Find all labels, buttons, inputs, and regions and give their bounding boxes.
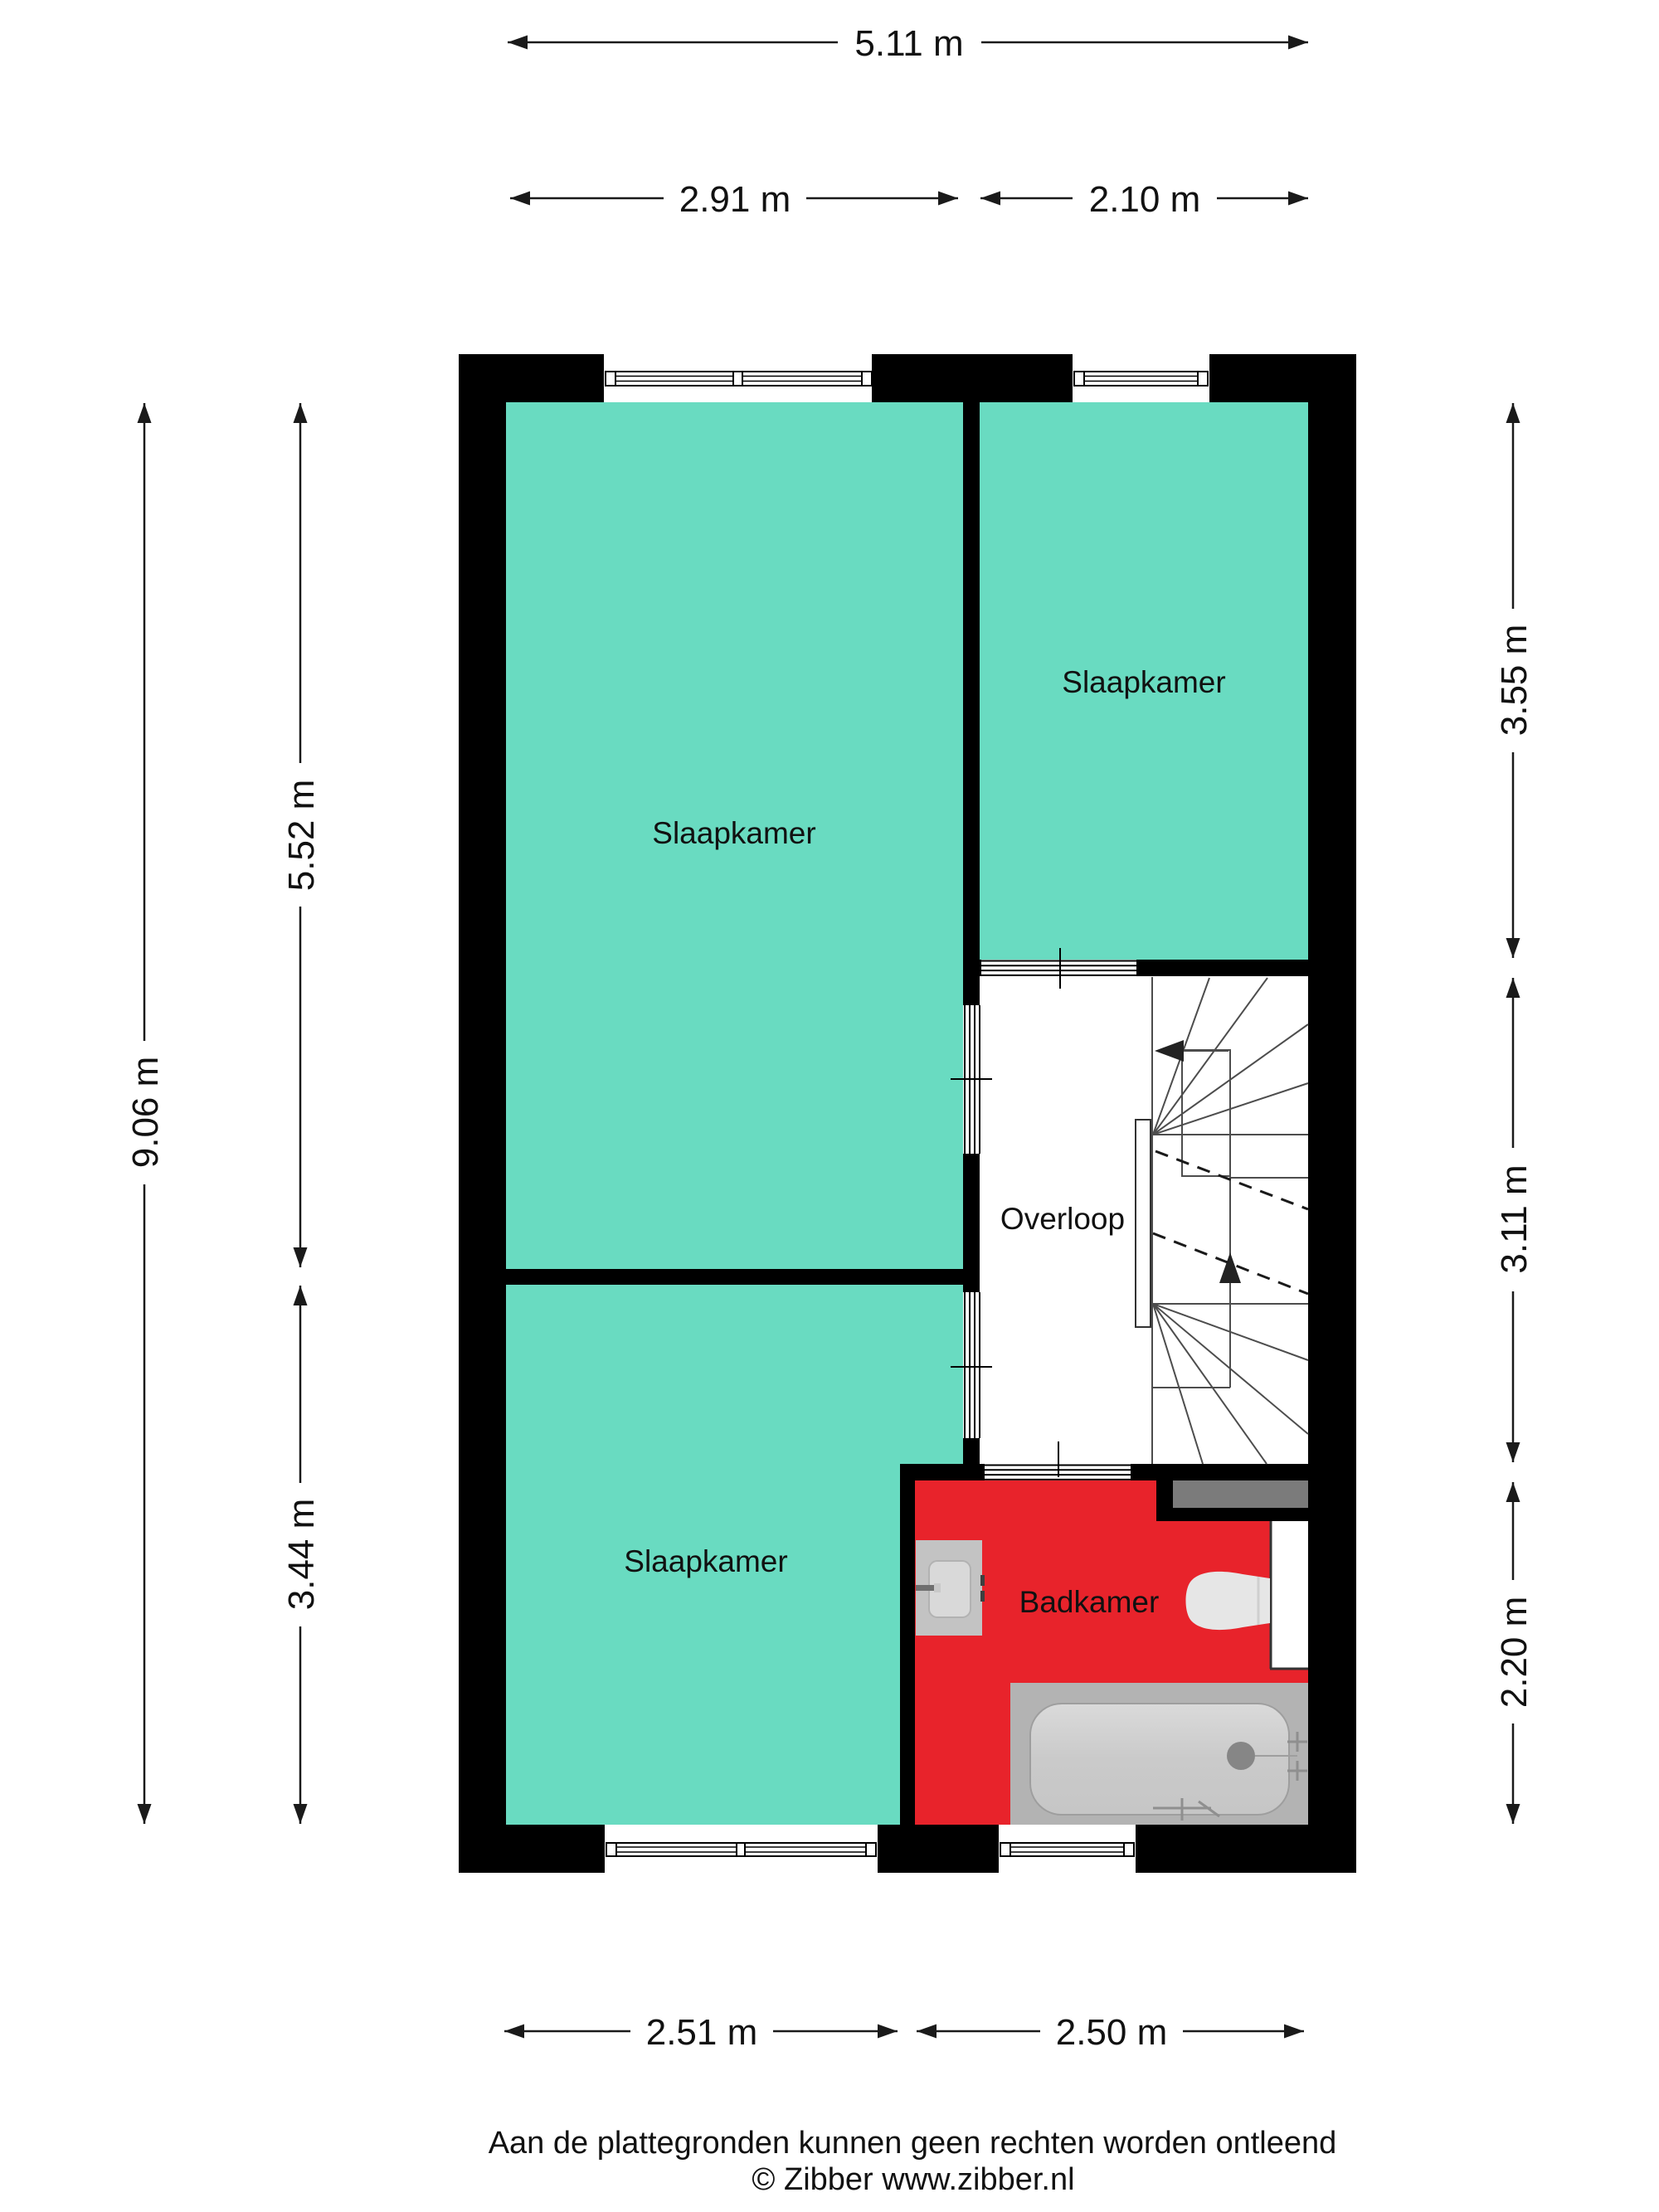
svg-text:Slaapkamer: Slaapkamer (624, 1544, 787, 1578)
svg-text:2.10 m: 2.10 m (1089, 179, 1201, 220)
svg-text:2.50 m: 2.50 m (1056, 2012, 1168, 2053)
svg-text:5.11 m: 5.11 m (854, 23, 963, 64)
svg-text:Slaapkamer: Slaapkamer (1062, 665, 1225, 699)
svg-text:5.52 m: 5.52 m (281, 780, 322, 892)
svg-text:© Zibber www.zibber.nl: © Zibber www.zibber.nl (752, 2162, 1074, 2197)
svg-text:2.51 m: 2.51 m (646, 2012, 758, 2053)
svg-text:3.44 m: 3.44 m (281, 1499, 322, 1611)
svg-text:3.55 m: 3.55 m (1494, 625, 1535, 737)
svg-text:Aan de plattegronden kunnen ge: Aan de plattegronden kunnen geen rechten… (489, 2126, 1337, 2161)
svg-text:3.11 m: 3.11 m (1494, 1164, 1535, 1273)
svg-text:9.06 m: 9.06 m (125, 1057, 166, 1169)
svg-text:2.91 m: 2.91 m (679, 179, 791, 220)
svg-text:Badkamer: Badkamer (1019, 1585, 1160, 1619)
svg-text:Slaapkamer: Slaapkamer (652, 816, 815, 850)
svg-text:Overloop: Overloop (1000, 1202, 1125, 1236)
svg-text:2.20 m: 2.20 m (1494, 1597, 1535, 1709)
